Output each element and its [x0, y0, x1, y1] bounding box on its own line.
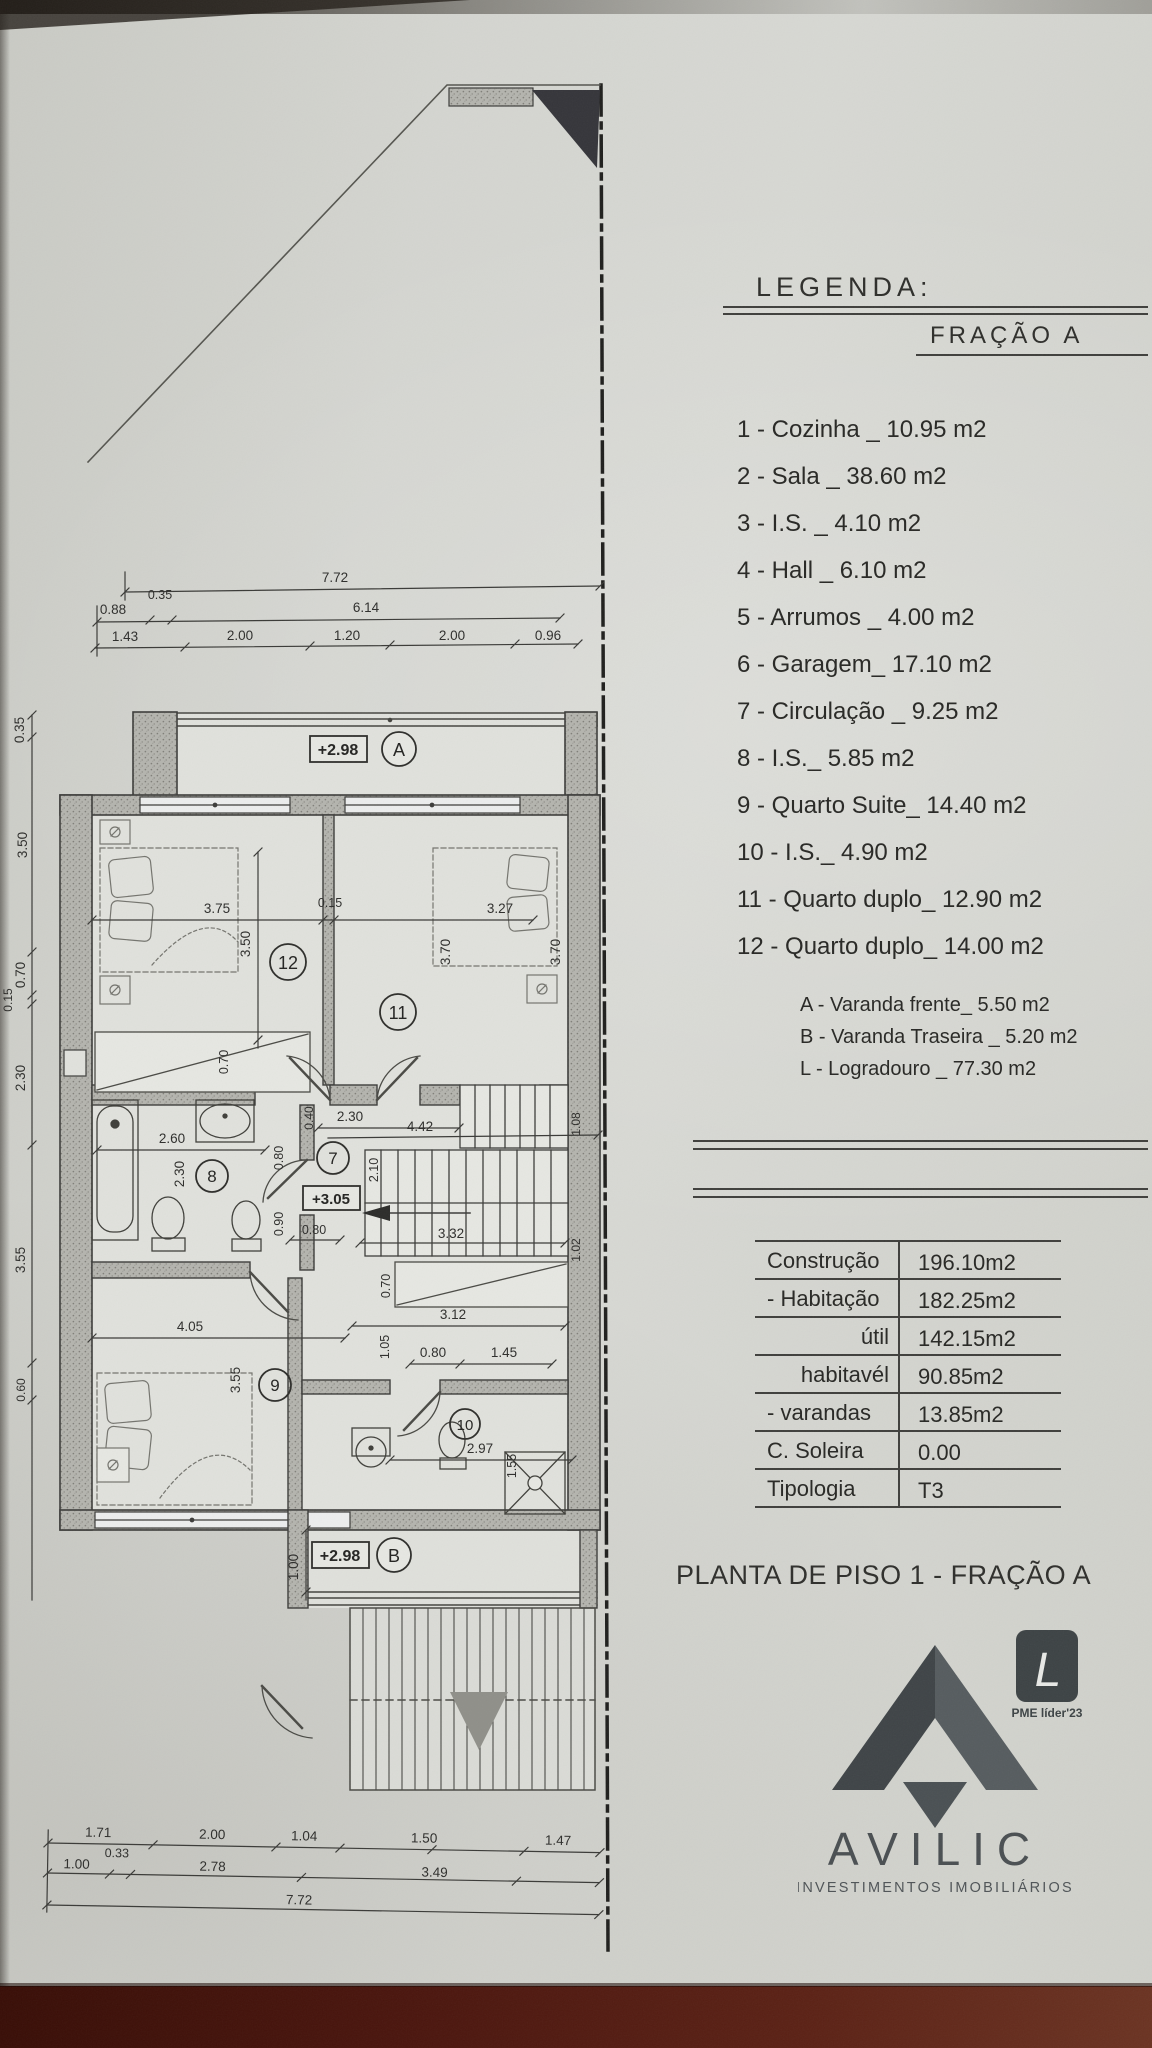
svg-text:0.80: 0.80 — [420, 1345, 446, 1360]
svg-text:0.90: 0.90 — [272, 1212, 286, 1236]
svg-text:1.05: 1.05 — [378, 1335, 392, 1359]
svg-text:1.00: 1.00 — [63, 1856, 90, 1871]
balcony-b-letter: B — [388, 1546, 400, 1566]
svg-text:1.02: 1.02 — [569, 1238, 583, 1262]
logo-name: AVILIC — [828, 1823, 1042, 1875]
svg-text:7.72: 7.72 — [286, 1892, 313, 1907]
legend-item: 12 - Quarto duplo_ 14.00 m2 — [737, 927, 1137, 974]
svg-text:0.70: 0.70 — [379, 1274, 393, 1298]
sheet-title: PLANTA DE PISO 1 - FRAÇÃO A — [676, 1560, 1091, 1591]
legend-item: 8 - I.S._ 5.85 m2 — [737, 739, 1137, 786]
table-row: - Habitação 182.25m2 — [755, 1280, 1061, 1318]
svg-text:0.70: 0.70 — [13, 962, 28, 988]
svg-text:2.30: 2.30 — [13, 1065, 28, 1091]
legend-item-list: 1 - Cozinha _ 10.95 m2 2 - Sala _ 38.60 … — [737, 410, 1137, 974]
table-row: Tipologia T3 — [755, 1470, 1061, 1508]
svg-text:3.12: 3.12 — [440, 1307, 466, 1322]
table-row-label: Tipologia — [767, 1476, 855, 1502]
level-b: +2.98 — [320, 1548, 361, 1565]
svg-text:0.60: 0.60 — [14, 1378, 28, 1402]
svg-text:3.49: 3.49 — [421, 1865, 448, 1880]
svg-text:3.32: 3.32 — [438, 1226, 464, 1241]
table-row: habitavél 90.85m2 — [755, 1356, 1061, 1394]
room-number-9: 9 — [270, 1376, 279, 1395]
table-row: C. Soleira 0.00 — [755, 1432, 1061, 1470]
table-row-label: - Habitação — [767, 1286, 880, 1312]
pme-badge-letter: L — [1035, 1644, 1062, 1697]
table-row-value: 182.25m2 — [918, 1288, 1016, 1314]
logo-mark-left — [832, 1645, 935, 1790]
svg-text:2.10: 2.10 — [367, 1158, 381, 1182]
separator — [693, 1140, 1148, 1142]
legend-title: LEGENDA: — [756, 272, 933, 303]
room-number-10: 10 — [457, 1417, 474, 1434]
balcony-a-letter: A — [393, 740, 405, 760]
svg-text:4.05: 4.05 — [177, 1319, 203, 1334]
floor-plan: +2.98 A +3.05 +2.98 B 12 11 8 7 9 10 — [0, 0, 660, 1960]
svg-text:1.20: 1.20 — [334, 628, 360, 643]
svg-text:0.96: 0.96 — [535, 628, 561, 643]
svg-text:2.00: 2.00 — [199, 1827, 226, 1842]
svg-text:2.97: 2.97 — [467, 1441, 493, 1456]
svg-text:2.78: 2.78 — [199, 1859, 226, 1874]
svg-text:0.35: 0.35 — [148, 588, 172, 602]
legend-item: 9 - Quarto Suite_ 14.40 m2 — [737, 786, 1137, 833]
table-row-value: 13.85m2 — [918, 1402, 1004, 1428]
legend-sub-item: A - Varanda frente_ 5.50 m2 — [800, 990, 1152, 1022]
table-row-value: 196.10m2 — [918, 1250, 1016, 1276]
plot-boundary-line — [88, 85, 600, 462]
separator — [693, 1196, 1148, 1198]
site-boundary-line — [601, 85, 608, 1950]
svg-text:1.55: 1.55 — [505, 1454, 519, 1478]
svg-text:1.00: 1.00 — [286, 1554, 301, 1580]
svg-text:6.14: 6.14 — [353, 600, 380, 615]
legend-item: 2 - Sala _ 38.60 m2 — [737, 457, 1137, 504]
gate-wall — [449, 88, 533, 106]
svg-text:0.70: 0.70 — [217, 1050, 231, 1074]
table-row: Construção 196.10m2 — [755, 1240, 1061, 1280]
svg-text:1.08: 1.08 — [569, 1112, 583, 1136]
legend-sub-item-list: A - Varanda frente_ 5.50 m2 B - Varanda … — [800, 990, 1152, 1086]
svg-text:1.04: 1.04 — [291, 1828, 318, 1843]
table-row: útil 142.15m2 — [755, 1318, 1061, 1356]
svg-text:2.30: 2.30 — [337, 1109, 363, 1124]
svg-text:3.55: 3.55 — [228, 1367, 243, 1393]
svg-text:3.50: 3.50 — [238, 931, 253, 957]
pme-badge-caption: PME líder'23 — [1012, 1706, 1083, 1720]
svg-text:0.88: 0.88 — [100, 602, 126, 617]
svg-text:0.15: 0.15 — [318, 896, 342, 910]
legend-sub-item: L - Logradouro _ 77.30 m2 — [800, 1054, 1152, 1086]
fraction-heading: FRAÇÃO A — [930, 322, 1083, 350]
photo-top-shadow — [0, 0, 1152, 14]
svg-text:2.00: 2.00 — [227, 628, 253, 643]
room-number-7: 7 — [328, 1149, 337, 1168]
table-row-label: útil — [861, 1324, 889, 1350]
legend-item: 4 - Hall _ 6.10 m2 — [737, 551, 1137, 598]
svg-text:1.43: 1.43 — [112, 629, 138, 644]
separator — [693, 1188, 1148, 1190]
room-number-12: 12 — [278, 953, 298, 973]
svg-text:0.80: 0.80 — [272, 1146, 286, 1170]
legend-item: 10 - I.S._ 4.90 m2 — [737, 833, 1137, 880]
svg-text:0.33: 0.33 — [105, 1846, 130, 1860]
svg-text:7.72: 7.72 — [322, 570, 348, 585]
svg-text:1.50: 1.50 — [411, 1830, 438, 1845]
separator — [693, 1148, 1148, 1150]
svg-text:3.70: 3.70 — [548, 939, 563, 965]
svg-text:4.42: 4.42 — [407, 1119, 433, 1134]
svg-text:0.40: 0.40 — [302, 1106, 316, 1130]
svg-text:3.50: 3.50 — [15, 832, 30, 858]
legend-item: 6 - Garagem_ 17.10 m2 — [737, 645, 1137, 692]
table-row-label: - varandas — [767, 1400, 871, 1426]
svg-text:2.00: 2.00 — [439, 628, 465, 643]
svg-text:0.35: 0.35 — [12, 717, 27, 743]
desk-surface — [0, 1986, 1152, 2048]
svg-text:3.55: 3.55 — [13, 1247, 28, 1273]
table-row-label: Construção — [767, 1248, 880, 1274]
level-stairs: +3.05 — [312, 1191, 350, 1208]
logo-mark-down-triangle — [903, 1782, 967, 1828]
legend-title-underline2 — [723, 313, 1148, 315]
room-number-8: 8 — [207, 1167, 216, 1186]
svg-text:3.75: 3.75 — [204, 901, 230, 916]
table-row-value: 142.15m2 — [918, 1326, 1016, 1352]
svg-text:1.45: 1.45 — [491, 1345, 517, 1360]
svg-text:0.80: 0.80 — [302, 1223, 326, 1237]
table-row: - varandas 13.85m2 — [755, 1394, 1061, 1432]
company-logo: L PME líder'23 AVILIC INVESTIMENTOS IMOB… — [798, 1622, 1108, 1932]
legend-item: 1 - Cozinha _ 10.95 m2 — [737, 410, 1137, 457]
svg-text:3.70: 3.70 — [438, 939, 453, 965]
table-row-value: 90.85m2 — [918, 1364, 1004, 1390]
svg-text:2.30: 2.30 — [172, 1161, 187, 1187]
svg-text:3.27: 3.27 — [487, 901, 513, 916]
areas-table: Construção 196.10m2 - Habitação 182.25m2… — [755, 1240, 1061, 1508]
level-a: +2.98 — [318, 742, 359, 759]
fraction-underline — [916, 354, 1148, 356]
table-row-label: C. Soleira — [767, 1438, 864, 1464]
photographed-floor-plan-sheet: +2.98 A +3.05 +2.98 B 12 11 8 7 9 10 — [0, 0, 1152, 2048]
legend-item: 5 - Arrumos _ 4.00 m2 — [737, 598, 1137, 645]
svg-text:1.71: 1.71 — [85, 1825, 112, 1840]
legend-sub-item: B - Varanda Traseira _ 5.20 m2 — [800, 1022, 1152, 1054]
gate-arrow — [532, 90, 600, 168]
legend-item: 7 - Circulação _ 9.25 m2 — [737, 692, 1137, 739]
svg-text:2.60: 2.60 — [159, 1131, 185, 1146]
table-row-value: 0.00 — [918, 1440, 961, 1466]
room-number-11: 11 — [389, 1003, 408, 1023]
logo-tagline: INVESTIMENTOS IMOBILIÁRIOS — [798, 1879, 1074, 1896]
legend-item: 3 - I.S. _ 4.10 m2 — [737, 504, 1137, 551]
photo-left-shadow — [0, 0, 10, 2048]
table-row-label: habitavél — [801, 1362, 889, 1388]
legend-item: 11 - Quarto duplo_ 12.90 m2 — [737, 880, 1137, 927]
svg-text:1.47: 1.47 — [545, 1833, 572, 1848]
legend-title-underline — [723, 306, 1148, 308]
table-row-value: T3 — [918, 1478, 944, 1504]
